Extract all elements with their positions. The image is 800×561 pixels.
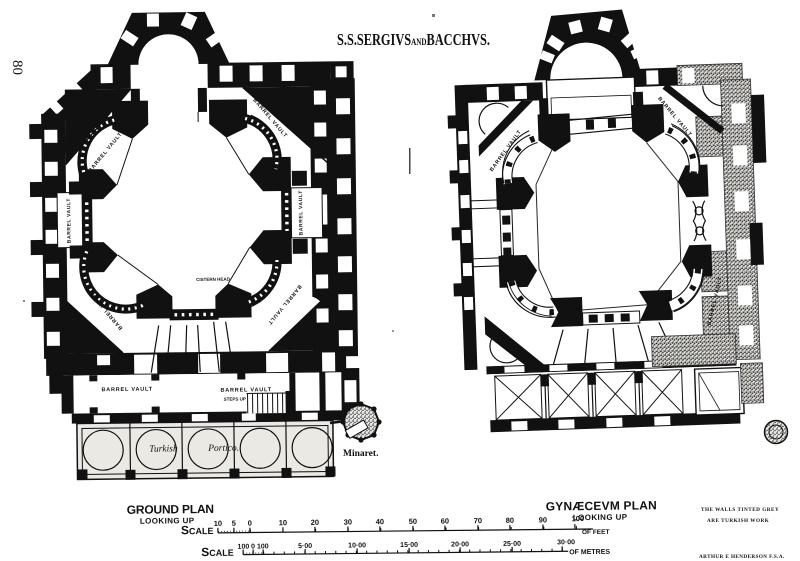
svg-text:BARREL VAULT: BARREL VAULT bbox=[66, 198, 73, 243]
svg-text:10: 10 bbox=[214, 519, 222, 528]
svg-text:Minaret.: Minaret. bbox=[343, 449, 378, 459]
svg-text:20·00: 20·00 bbox=[451, 541, 469, 548]
svg-text:100: 100 bbox=[572, 514, 585, 523]
svg-text:0: 0 bbox=[248, 519, 252, 528]
svg-text:Turkish: Turkish bbox=[149, 444, 178, 454]
svg-text:CISTERN HEAD: CISTERN HEAD bbox=[196, 277, 231, 282]
svg-text:GYNÆCEVM PLAN: GYNÆCEVM PLAN bbox=[546, 498, 657, 513]
svg-text:30·00: 30·00 bbox=[557, 539, 575, 546]
svg-text:60: 60 bbox=[441, 516, 449, 525]
svg-text:70: 70 bbox=[474, 516, 482, 525]
svg-text:BARREL VAULT: BARREL VAULT bbox=[298, 190, 305, 235]
svg-text:90: 90 bbox=[539, 515, 547, 524]
svg-text:ARTHUR E HENDERSON F.S.A.: ARTHUR E HENDERSON F.S.A. bbox=[699, 554, 785, 560]
svg-text:50: 50 bbox=[409, 517, 417, 526]
svg-text:15·00: 15·00 bbox=[400, 542, 418, 549]
svg-text:40: 40 bbox=[376, 517, 384, 526]
svg-text:10·00: 10·00 bbox=[348, 542, 366, 549]
svg-text:THE WALLS TINTED GREY: THE WALLS TINTED GREY bbox=[701, 507, 779, 513]
svg-text:STEPS UP: STEPS UP bbox=[224, 396, 246, 401]
svg-text:GROUND PLAN: GROUND PLAN bbox=[127, 502, 214, 517]
svg-text:5: 5 bbox=[232, 519, 236, 528]
svg-text:Portico.: Portico. bbox=[207, 444, 239, 454]
svg-text:80: 80 bbox=[9, 60, 25, 75]
svg-text:100 0 100: 100 0 100 bbox=[238, 543, 269, 550]
svg-text:OF FEET: OF FEET bbox=[582, 529, 610, 536]
svg-text:80: 80 bbox=[506, 516, 514, 525]
svg-text:BARREL VAULT: BARREL VAULT bbox=[101, 387, 153, 394]
svg-text:5·00: 5·00 bbox=[298, 543, 312, 550]
svg-text:OF METRES: OF METRES bbox=[569, 549, 610, 556]
svg-text:ARE TURKISH WORK: ARE TURKISH WORK bbox=[707, 518, 769, 524]
svg-text:30: 30 bbox=[344, 518, 352, 527]
svg-text:25·00: 25·00 bbox=[503, 541, 521, 548]
svg-text:20: 20 bbox=[311, 518, 319, 527]
svg-text:10: 10 bbox=[279, 518, 287, 527]
